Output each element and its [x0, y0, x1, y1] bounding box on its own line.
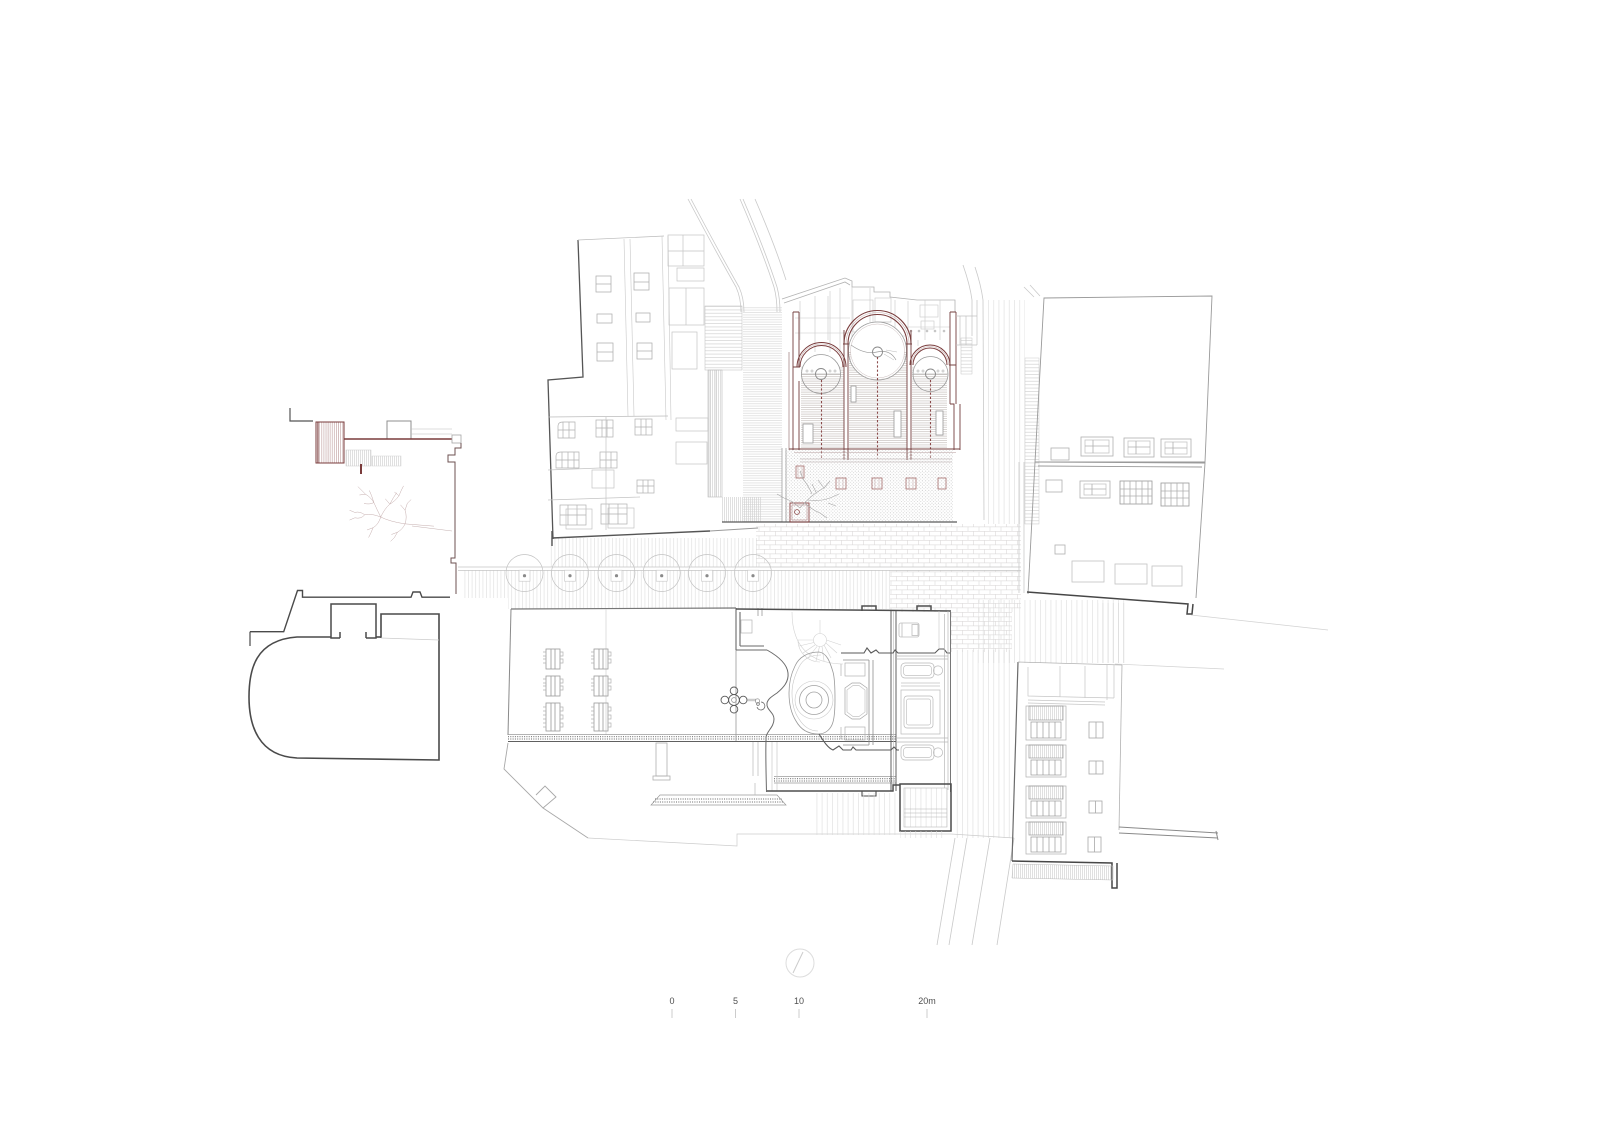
svg-text:0: 0	[669, 996, 674, 1006]
svg-text:20m: 20m	[918, 996, 936, 1006]
svg-text:10: 10	[794, 996, 804, 1006]
svg-text:5: 5	[733, 996, 738, 1006]
